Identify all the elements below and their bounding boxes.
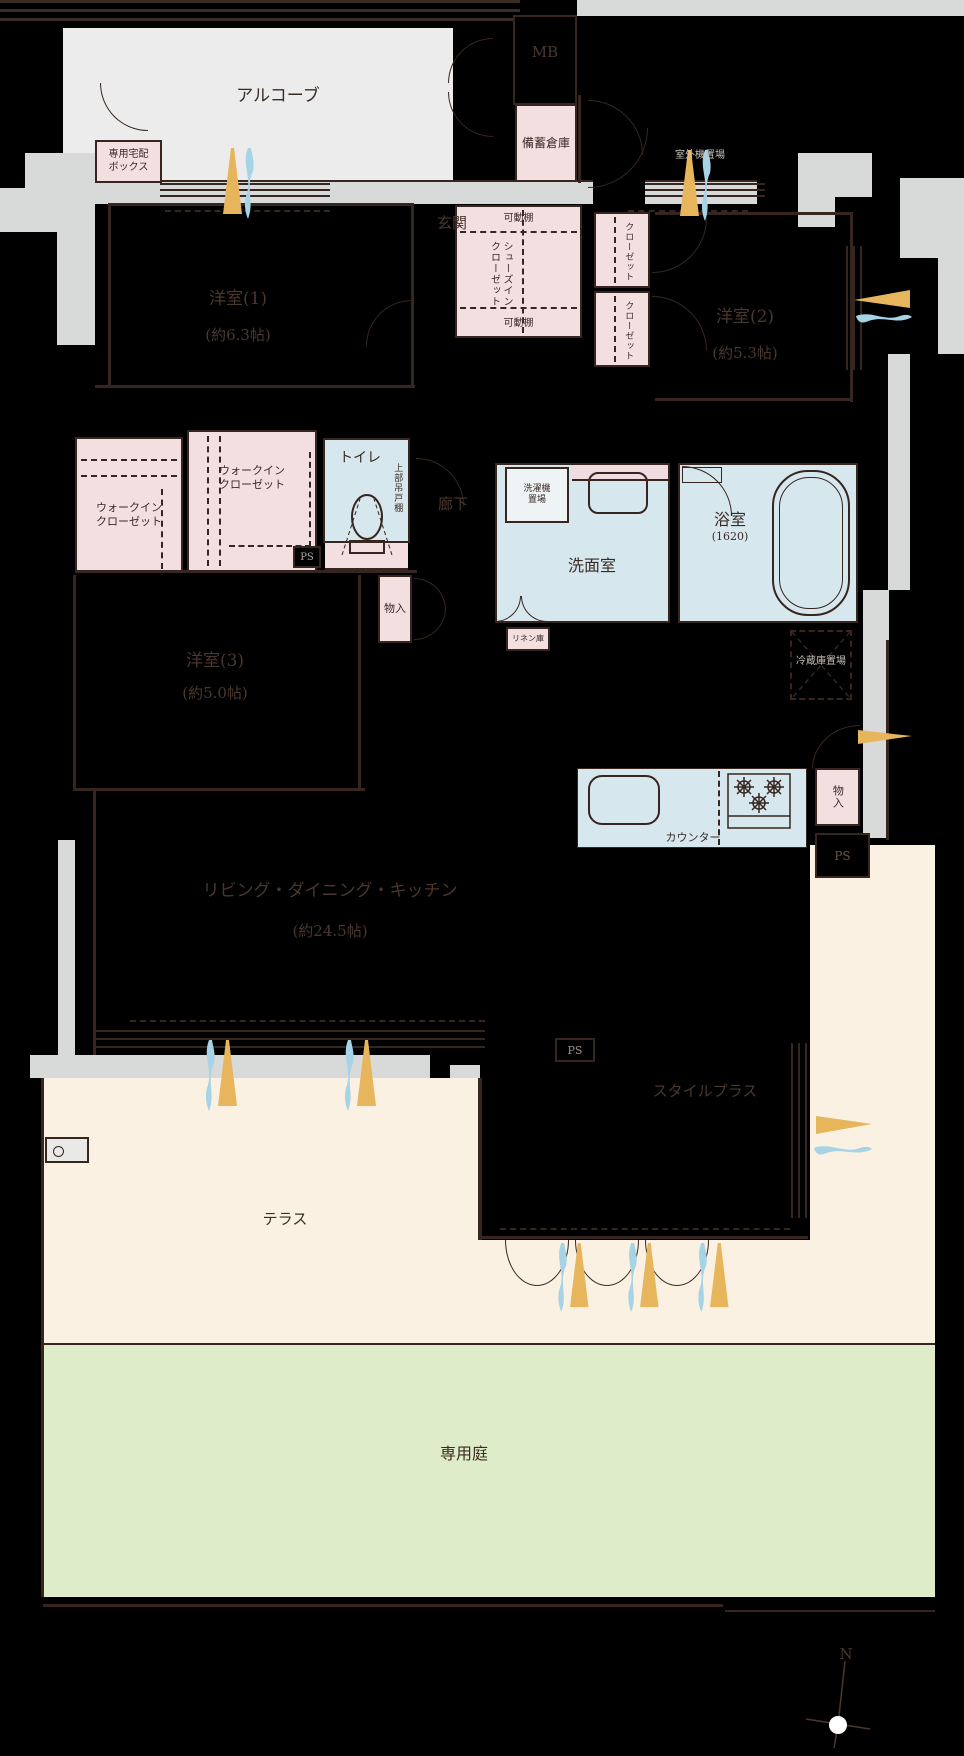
right-wall-c bbox=[888, 354, 910, 590]
rouka-label: 廊下 bbox=[420, 495, 486, 515]
door-arc-closet-1 bbox=[652, 218, 707, 273]
private-garden-area bbox=[43, 1345, 935, 1597]
yoshitsu1-label-block: 洋室(1) (約6.3帖) bbox=[138, 288, 338, 346]
terrace-right-arm bbox=[810, 845, 935, 1345]
mb-room: MB bbox=[513, 15, 577, 105]
senmen-label: 洗面室 bbox=[542, 556, 642, 576]
yoshitsu3-size: (約5.0帖) bbox=[115, 684, 315, 704]
bathtub bbox=[772, 470, 850, 616]
door-arc-monoire-1 bbox=[414, 578, 446, 610]
monoire-kitchen-label: 物入 bbox=[831, 785, 845, 809]
ps-kitchen-label: PS bbox=[834, 849, 850, 863]
sic-divider-dash bbox=[522, 210, 524, 333]
stove bbox=[726, 772, 794, 832]
linen-label: リネン庫 bbox=[512, 634, 544, 644]
door-arc-entrance-2 bbox=[588, 128, 648, 188]
fridge-label: 冷蔵庫置場 bbox=[776, 656, 866, 668]
walk-in-closet-1: ウォークイン クローゼット bbox=[75, 437, 183, 572]
ldk-left-wall bbox=[58, 840, 75, 1055]
closet-b-label: クローゼット bbox=[622, 299, 633, 363]
ps-hall: PS bbox=[293, 546, 321, 568]
genkan-left-wall bbox=[578, 95, 581, 183]
ps-styleplus-label: PS bbox=[568, 1044, 583, 1057]
toilet-fixture bbox=[338, 485, 396, 565]
ps-kitchen: PS bbox=[815, 833, 870, 878]
sic-label: シューズイン クローゼット bbox=[487, 239, 512, 309]
airflow-arrow-left-yoshitsu2 bbox=[854, 286, 912, 332]
styleplus-label: スタイルプラス bbox=[630, 1082, 780, 1102]
door-arc-mb-2 bbox=[448, 92, 493, 137]
monoire-hall: 物入 bbox=[378, 575, 412, 643]
ldk-size: (約24.5帖) bbox=[180, 922, 480, 942]
yoshitsu2-label-block: 洋室(2) (約5.3帖) bbox=[645, 306, 845, 364]
yoshitsu1-size: (約6.3帖) bbox=[138, 326, 338, 346]
wic1-label: ウォークイン クローゼット bbox=[77, 501, 181, 529]
kitchen-counter: カウンター bbox=[577, 768, 807, 848]
yoshitsu3-bottom-wall bbox=[73, 788, 365, 791]
wic2-dash2 bbox=[219, 436, 221, 566]
washer-label: 洗濯機 置場 bbox=[523, 484, 550, 507]
left-wall-block-v bbox=[25, 153, 95, 232]
kitchen-sink bbox=[588, 775, 660, 825]
yoshitsu2-label: 洋室(2) bbox=[645, 306, 845, 328]
garden-terrace-border bbox=[43, 1343, 935, 1345]
alcove-label: アルコーブ bbox=[178, 86, 378, 107]
vanity-sink bbox=[588, 472, 648, 514]
closet-a: クローゼット bbox=[594, 212, 650, 288]
closet-a-label: クローゼット bbox=[622, 220, 633, 284]
airflow-arrow-down-styleplus-2 bbox=[618, 1243, 664, 1313]
door-arc-kitchen-service bbox=[812, 725, 860, 769]
airflow-arrow-down-ldk-2 bbox=[335, 1040, 381, 1112]
yoshitsu1-left-wall bbox=[108, 205, 111, 387]
terrace-drain-box bbox=[45, 1137, 89, 1163]
ldk-label-block: リビング・ダイニング・キッチン (約24.5帖) bbox=[180, 880, 480, 942]
closet-b: クローゼット bbox=[594, 291, 650, 367]
wic2-label: ウォークイン クローゼット bbox=[189, 464, 315, 492]
bottom-fence-1 bbox=[43, 1604, 723, 1607]
window-ldk-bottom bbox=[95, 1030, 485, 1048]
ldk-left-wall-line bbox=[93, 790, 96, 1055]
left-wall-column bbox=[57, 232, 95, 345]
bathtub-inner bbox=[779, 477, 843, 609]
yoshitsu1-top-wall bbox=[108, 203, 414, 206]
yoshitsu3-right-wall bbox=[358, 575, 361, 790]
washer-box: 洗濯機 置場 bbox=[505, 467, 569, 523]
yoshitsu1-bottom-wall bbox=[95, 385, 415, 388]
ps-hall-label: PS bbox=[300, 552, 314, 563]
delivery-box: 専用宅配 ボックス bbox=[95, 140, 162, 183]
compass-star-icon bbox=[788, 1659, 898, 1749]
linen-closet: リネン庫 bbox=[506, 627, 550, 651]
toilet-label: トイレ bbox=[327, 450, 393, 468]
terrace-label: テラス bbox=[245, 1210, 325, 1229]
closet-a-dash bbox=[614, 217, 616, 283]
bath-size-label: (1620) bbox=[680, 530, 780, 544]
yoshitsu1-label: 洋室(1) bbox=[138, 288, 338, 310]
door-arc-yoshitsu1 bbox=[366, 300, 412, 346]
yoshitsu2-bottom-wall bbox=[655, 398, 853, 401]
bichiku-soko: 備蓄倉庫 bbox=[515, 104, 577, 182]
styleplus-window bbox=[791, 1043, 807, 1218]
monoire-kitchen: 物入 bbox=[815, 768, 860, 826]
counter-label: カウンター bbox=[638, 831, 748, 845]
yoshitsu3-label: 洋室(3) bbox=[115, 650, 315, 672]
garden-label: 専用庭 bbox=[404, 1444, 524, 1464]
ldk-label: リビング・ダイニング・キッチン bbox=[180, 880, 480, 902]
airflow-arrow-down-styleplus-1 bbox=[548, 1243, 594, 1313]
bottom-fence-2 bbox=[725, 1610, 935, 1612]
styleplus-door-dash bbox=[500, 1228, 790, 1230]
bichiku-label: 備蓄倉庫 bbox=[522, 136, 570, 151]
airflow-arrow-down-yoshitsu1 bbox=[215, 148, 261, 220]
airflow-arrow-down-ldk-1 bbox=[196, 1040, 242, 1112]
yoshitsu3-left-wall bbox=[73, 575, 76, 790]
airflow-arrow-right-kitchen bbox=[856, 724, 912, 750]
wic2-dash1 bbox=[207, 436, 209, 566]
wic1-dash2 bbox=[81, 475, 177, 477]
kadou-bottom-label: 可動棚 bbox=[457, 318, 580, 331]
yoshitsu2-size: (約5.3帖) bbox=[645, 344, 845, 364]
closet-b-dash bbox=[614, 296, 616, 362]
porch-corner-top bbox=[798, 153, 872, 197]
styleplus-bottom-wall bbox=[482, 1236, 808, 1239]
yoshitsu3-label-block: 洋室(3) (約5.0帖) bbox=[115, 650, 315, 704]
ps-styleplus: PS bbox=[555, 1038, 595, 1062]
monoire-hall-label: 物入 bbox=[384, 602, 406, 616]
sill-ldk bbox=[130, 1020, 485, 1022]
top-hatch-band bbox=[0, 0, 520, 26]
right-wall-a bbox=[900, 178, 964, 258]
genkan-label: 玄関 bbox=[412, 214, 492, 234]
sic-shelf-dash-bottom bbox=[460, 307, 577, 309]
wic1-dash1 bbox=[81, 459, 177, 461]
floor-plan: 専用宅配 ボックス 備蓄倉庫 可動棚 シューズイン クローゼット 可動棚 クロー… bbox=[0, 0, 964, 1756]
outdoor-unit-label: 室外機置場 bbox=[650, 150, 750, 162]
door-arc-mb-1 bbox=[448, 38, 493, 83]
airflow-arrow-down-styleplus-3 bbox=[688, 1243, 734, 1313]
drain-circle bbox=[53, 1146, 64, 1157]
top-right-wall-strip bbox=[577, 0, 964, 16]
door-arc-monoire-2 bbox=[414, 608, 446, 640]
mb-label: MB bbox=[515, 43, 575, 63]
right-wall-b bbox=[938, 258, 964, 354]
styleplus-room bbox=[480, 1040, 808, 1240]
airflow-arrow-right-styleplus bbox=[812, 1112, 872, 1164]
left-boundary-wall bbox=[41, 1078, 44, 1597]
compass: N bbox=[788, 1645, 898, 1750]
delivery-box-label: 専用宅配 ボックス bbox=[109, 149, 149, 174]
styleplus-left-wall-line bbox=[478, 1078, 482, 1240]
